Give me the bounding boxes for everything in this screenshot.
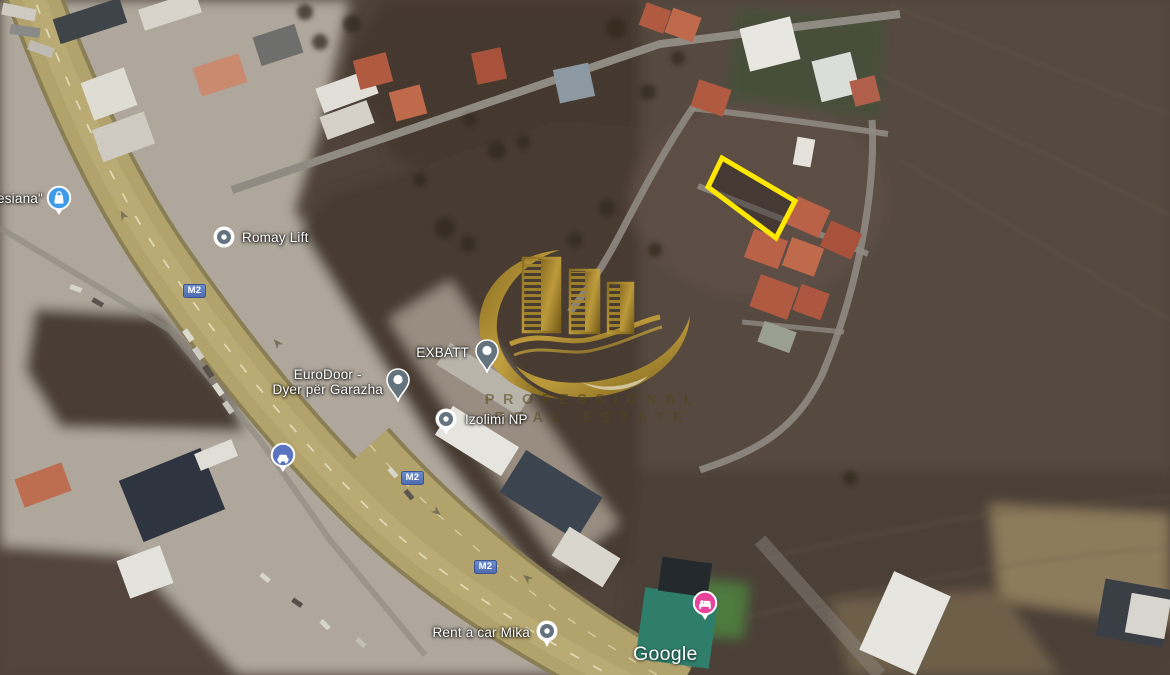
road-shield-m2: M2 [183,284,206,298]
label-eurodoor-line2: Dyer për Garazha [273,382,384,397]
shopping-poi-marker[interactable] [46,185,72,222]
google-logo: Google [633,643,698,665]
label-romay-lift[interactable]: Romay Lift [242,230,309,245]
label-exbatt[interactable]: EXBATT [416,345,469,360]
izolimi-poi-marker[interactable] [434,407,458,442]
satellite-map[interactable]: PROFESSIONAL REAL ESTATE [0,0,1170,675]
map-pin-icon [476,340,498,372]
label-esiana[interactable]: esiana" [0,191,43,206]
label-eurodoor[interactable]: EuroDoor - Dyer për Garazha [273,367,384,397]
rent-a-car-poi-marker[interactable] [535,619,559,654]
romay-lift-poi-marker[interactable] [212,225,236,260]
road-shield-m2: M2 [401,471,424,485]
car-dealer-poi-marker[interactable] [270,442,296,479]
satellite-imagery [0,0,1170,675]
eurodoor-pin-marker[interactable] [386,368,410,407]
lodging-poi-marker[interactable] [692,590,718,627]
road-shield-m2: M2 [474,560,497,574]
map-pin-icon [387,369,409,401]
label-izolimi[interactable]: Izolimi NP [465,412,528,427]
label-eurodoor-line1: EuroDoor - [273,367,384,382]
label-rent-a-car[interactable]: Rent a car Mika [432,625,530,640]
exbatt-pin-marker[interactable] [475,339,499,378]
